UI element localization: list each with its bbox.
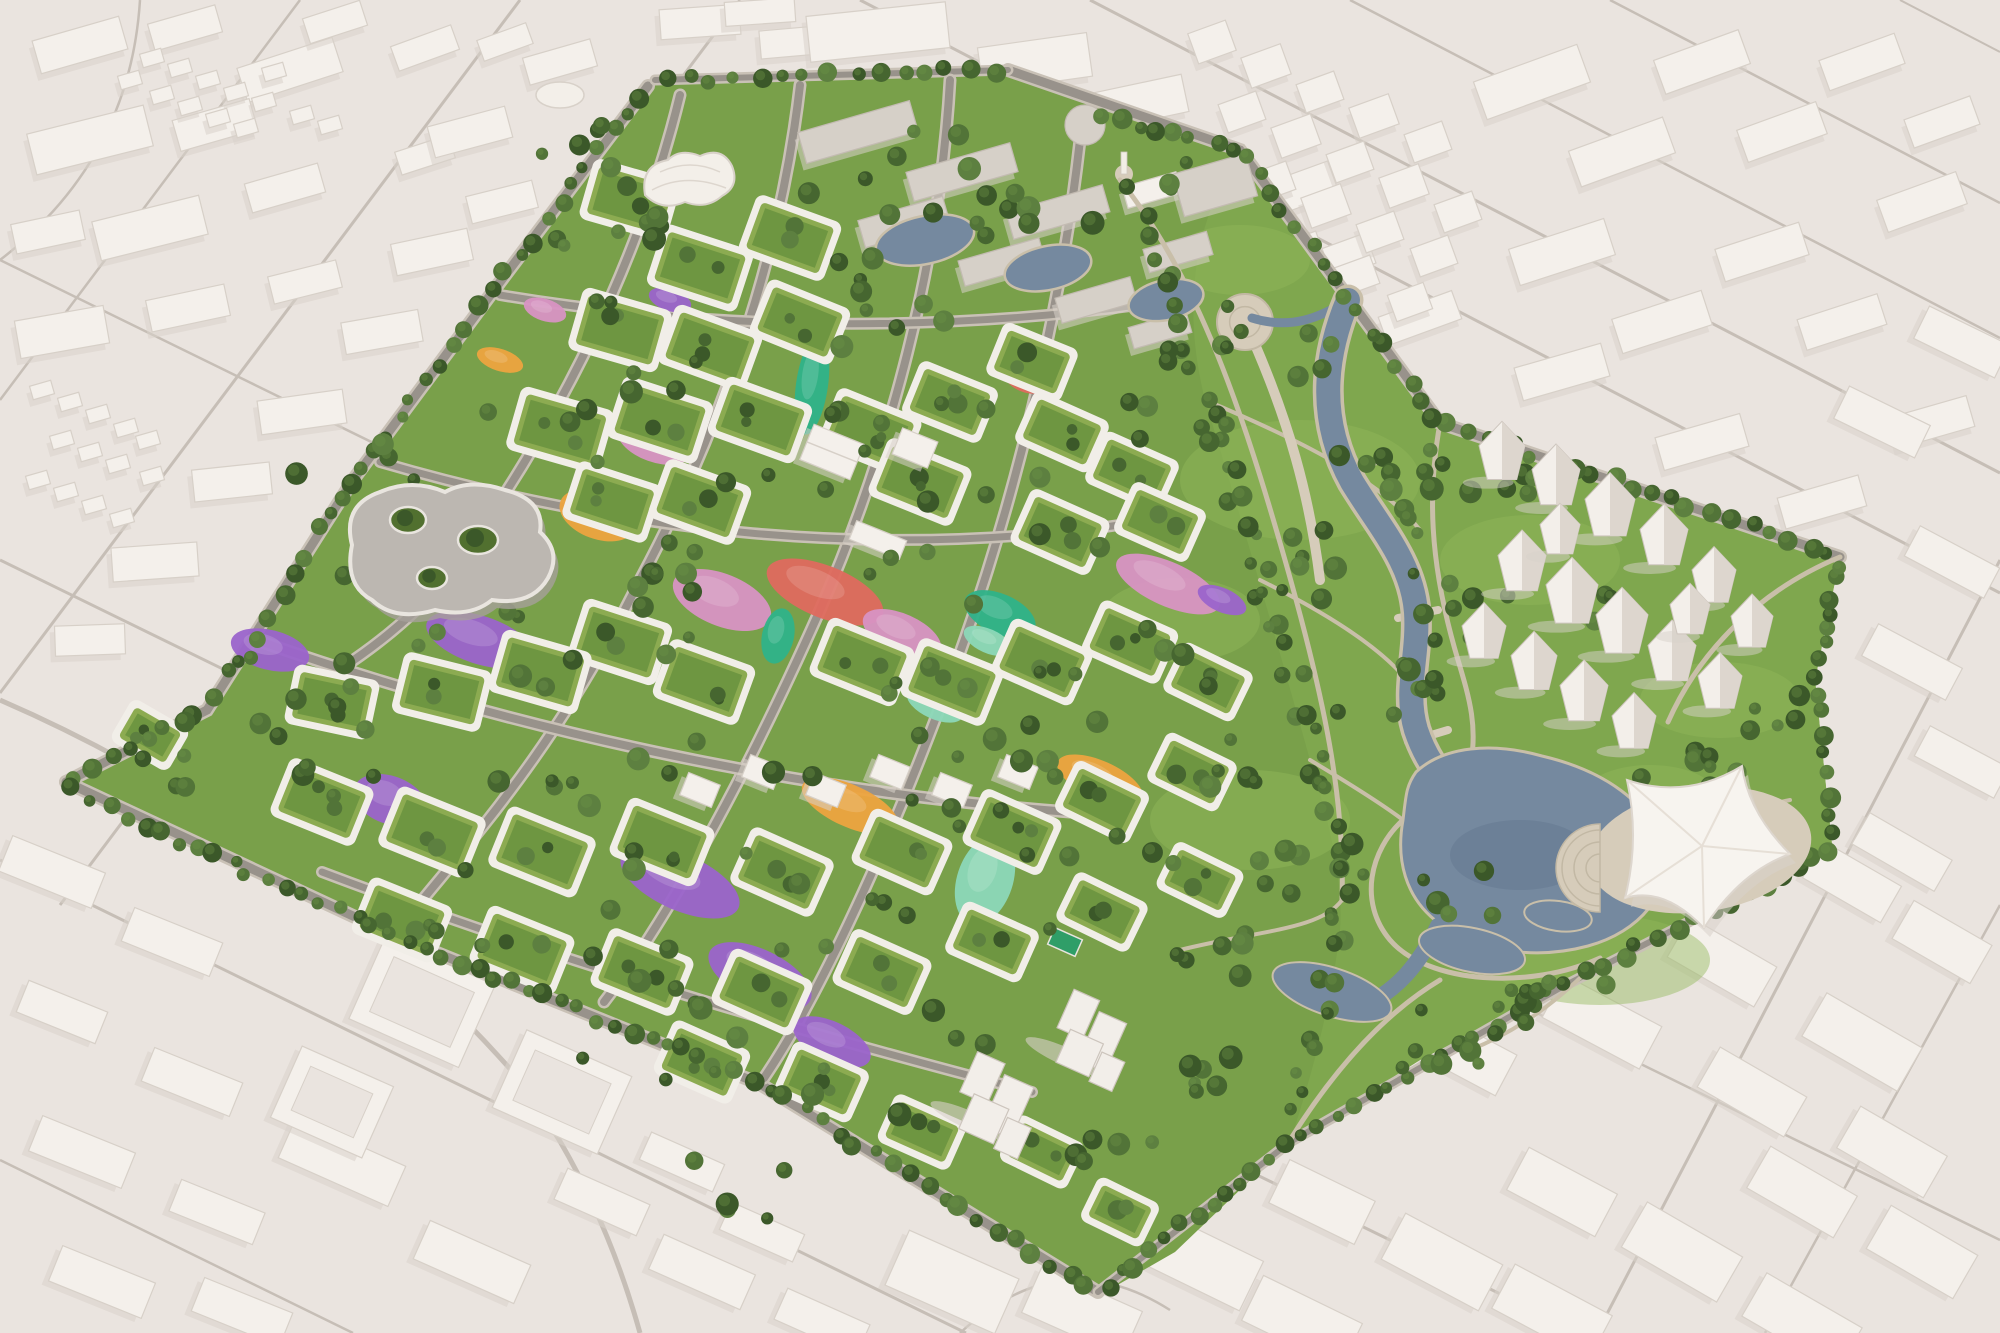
tree-highlight	[345, 680, 353, 688]
tree-highlight	[409, 475, 415, 481]
tree-highlight	[1159, 1233, 1165, 1239]
tree-highlight	[1331, 447, 1342, 458]
tree-highlight	[1177, 345, 1184, 352]
tree-highlight	[1298, 1087, 1304, 1093]
tree-highlight	[891, 1105, 903, 1117]
tree-highlight	[1327, 559, 1339, 571]
tree-highlight	[1443, 577, 1452, 586]
tree-highlight	[951, 126, 962, 137]
tree-highlight	[1077, 1154, 1086, 1163]
tree-highlight	[137, 752, 145, 760]
tree-highlight	[1821, 844, 1831, 854]
tree-highlight	[1319, 782, 1326, 789]
tree-highlight	[1318, 751, 1324, 757]
tree-highlight	[1317, 523, 1326, 532]
tree-highlight	[123, 814, 130, 821]
tree-highlight	[251, 633, 259, 641]
tree-highlight	[1815, 704, 1823, 712]
tree-highlight	[1543, 976, 1551, 984]
tree-highlight	[518, 250, 524, 256]
tree-highlight	[1039, 752, 1050, 763]
tree-highlight	[1292, 1068, 1298, 1074]
tree-highlight	[1290, 368, 1301, 379]
tree-highlight	[448, 339, 456, 347]
tree-highlight	[363, 918, 371, 926]
tree-highlight	[1433, 1055, 1444, 1066]
tree-highlight	[544, 213, 551, 220]
tree-highlight	[1148, 124, 1157, 133]
tree-highlight	[550, 232, 559, 241]
tree-highlight	[631, 971, 643, 983]
tree-highlight	[238, 869, 245, 876]
tree-highlight	[904, 1166, 913, 1175]
tree-highlight	[288, 691, 299, 702]
tree-highlight	[628, 367, 636, 375]
tree-highlight	[1257, 588, 1263, 594]
tree-highlight	[261, 611, 270, 620]
tree-highlight	[1333, 820, 1341, 828]
tree-highlight	[1183, 132, 1189, 138]
tree-highlight	[1327, 913, 1334, 920]
tree-highlight	[579, 401, 590, 412]
tree-highlight	[1447, 601, 1455, 609]
tree-highlight	[1332, 706, 1340, 714]
cloud-pavilion	[536, 82, 584, 108]
tree-highlight	[936, 398, 943, 405]
tree-highlight	[1219, 1187, 1227, 1195]
tree-highlight	[1084, 213, 1096, 225]
tree-highlight	[1235, 1179, 1242, 1186]
tree-highlight	[1032, 469, 1043, 480]
courtyard-tree	[466, 529, 484, 547]
tree-highlight	[1170, 315, 1180, 325]
tree-highlight	[953, 752, 959, 758]
tree-highlight	[1791, 687, 1802, 698]
tree-highlight	[1289, 222, 1296, 229]
tree-highlight	[232, 857, 238, 863]
tree-highlight	[818, 1113, 825, 1120]
tree-highlight	[591, 141, 599, 149]
tree-highlight	[1201, 678, 1210, 687]
tree-highlight	[473, 961, 483, 971]
context-building	[106, 542, 200, 588]
tree-highlight	[1369, 330, 1376, 337]
tree-highlight	[1652, 931, 1661, 940]
tree-highlight	[819, 1064, 825, 1070]
tree-highlight	[1070, 668, 1077, 675]
tree-highlight	[1276, 669, 1284, 677]
tree-highlight	[923, 1179, 932, 1188]
blob-building	[350, 484, 559, 622]
tree-highlight	[1397, 1062, 1404, 1069]
tree-highlight	[1773, 721, 1779, 727]
tree-highlight	[1506, 985, 1513, 992]
tree-highlight	[512, 667, 524, 679]
tree-highlight	[747, 1074, 757, 1084]
tree-highlight	[702, 76, 709, 83]
tree-highlight	[572, 137, 582, 147]
tree-highlight	[1137, 123, 1143, 129]
tree-highlight	[918, 66, 926, 74]
tree-highlight	[763, 469, 770, 476]
tree-highlight	[977, 1036, 987, 1046]
tree-highlight	[960, 680, 970, 690]
tree-highlight	[921, 545, 929, 553]
tree-highlight	[1812, 689, 1820, 697]
tree-highlight	[632, 91, 642, 101]
tree-highlight	[1325, 338, 1333, 346]
tree-highlight	[459, 864, 467, 872]
tree-highlight	[482, 405, 491, 414]
tree-highlight	[1606, 591, 1613, 598]
tree-highlight	[907, 795, 914, 802]
tree-highlight	[1743, 722, 1753, 732]
tree-highlight	[741, 848, 747, 854]
tree-highlight	[288, 566, 297, 575]
tree-highlight	[141, 820, 151, 830]
tree-highlight	[1427, 672, 1436, 681]
tree-highlight	[1344, 835, 1355, 846]
tree-highlight	[457, 323, 466, 332]
tree-highlight	[1705, 762, 1711, 768]
tree-highlight	[1348, 1099, 1356, 1107]
tree-highlight	[1121, 180, 1129, 188]
tree-highlight	[775, 1087, 785, 1097]
tree-highlight	[223, 664, 230, 671]
tree-highlight	[571, 1000, 578, 1007]
building-top	[54, 624, 125, 656]
tree-highlight	[989, 66, 999, 76]
tree-highlight	[1342, 885, 1352, 895]
tree-highlight	[525, 986, 531, 992]
tree-highlight	[435, 951, 443, 959]
tree-highlight	[627, 844, 636, 853]
tree-highlight	[1273, 205, 1281, 213]
tree-highlight	[337, 492, 345, 500]
tree-highlight	[1021, 215, 1032, 226]
tree-highlight	[954, 821, 961, 828]
tree-highlight	[1489, 1027, 1497, 1035]
tree-highlight	[1221, 494, 1230, 503]
tree-highlight	[1299, 707, 1309, 717]
tree-highlight	[85, 796, 91, 802]
tree-highlight	[591, 1017, 598, 1024]
tree-highlight	[471, 297, 481, 307]
tree-highlight	[1724, 511, 1734, 521]
tree-highlight	[375, 435, 386, 446]
tree-highlight	[288, 465, 299, 476]
tree-highlight	[820, 940, 828, 948]
tree-highlight	[1313, 972, 1322, 981]
tree-highlight	[1190, 1078, 1196, 1084]
tree-highlight	[692, 999, 704, 1011]
tree-highlight	[356, 463, 363, 470]
tree-highlight	[603, 902, 613, 912]
tree-highlight	[1230, 462, 1239, 471]
tree-highlight	[1702, 749, 1711, 758]
tree-highlight	[1145, 844, 1155, 854]
tree-highlight	[1023, 717, 1033, 727]
tree-highlight	[1476, 863, 1486, 873]
tree-highlight	[487, 973, 495, 981]
tree-highlight	[1425, 444, 1432, 451]
tree-highlight	[1303, 1032, 1312, 1041]
tree-highlight	[778, 1164, 786, 1172]
tree-highlight	[1172, 949, 1179, 956]
tree-highlight	[358, 722, 367, 731]
tree-highlight	[1388, 708, 1396, 716]
tree-highlight	[296, 888, 303, 895]
tree-highlight	[964, 61, 973, 70]
tree-highlight	[1140, 622, 1149, 631]
tree-highlight	[1376, 449, 1386, 459]
tree-highlight	[1222, 342, 1229, 349]
tree-highlight	[1213, 137, 1221, 145]
tree-highlight	[1174, 645, 1186, 657]
tree-highlight	[992, 1225, 1001, 1234]
tree-highlight	[669, 382, 679, 392]
tree-highlight	[1092, 539, 1102, 549]
tree-highlight	[691, 1049, 699, 1057]
tree-highlight	[1296, 1130, 1302, 1136]
tree-highlight	[1825, 609, 1832, 616]
tree-highlight	[1419, 875, 1425, 881]
tree-highlight	[1423, 1056, 1432, 1065]
tree-highlight	[1397, 501, 1407, 511]
tree-highlight	[1807, 541, 1817, 551]
tree-highlight	[1133, 432, 1142, 441]
tree-highlight	[1410, 1045, 1418, 1053]
tree-highlight	[891, 321, 899, 329]
tree-highlight	[1417, 1005, 1423, 1011]
tree-highlight	[1521, 985, 1529, 993]
tree-highlight	[1110, 1135, 1121, 1146]
tree-highlight	[1022, 1246, 1032, 1256]
tree-highlight	[1257, 168, 1263, 174]
tree-highlight	[490, 772, 501, 783]
tree-highlight	[1474, 1059, 1480, 1065]
tree-highlight	[336, 654, 347, 665]
tree-highlight	[1241, 150, 1249, 158]
tree-highlight	[1764, 527, 1771, 534]
tree-highlight	[864, 250, 875, 261]
tree-highlight	[526, 236, 536, 246]
tree-highlight	[610, 1021, 617, 1028]
tree-highlight	[797, 70, 803, 76]
tree-highlight	[1334, 1112, 1340, 1118]
tree-highlight	[635, 598, 646, 609]
tree-highlight	[901, 67, 908, 74]
tree-highlight	[1368, 1086, 1377, 1095]
tree-highlight	[85, 761, 95, 771]
tree-highlight	[1265, 1155, 1271, 1161]
tree-highlight	[1142, 1243, 1150, 1251]
tree-highlight	[177, 714, 187, 724]
tree-highlight	[1066, 1268, 1075, 1277]
tree-highlight	[1813, 652, 1821, 660]
tree-highlight	[659, 646, 669, 656]
tree-highlight	[330, 699, 339, 708]
tree-highlight	[1705, 505, 1715, 515]
tree-highlight	[1494, 1002, 1500, 1008]
tree-highlight	[1246, 559, 1252, 565]
tree-highlight	[431, 625, 439, 633]
tree-highlight	[535, 985, 545, 995]
tree-highlight	[125, 743, 132, 750]
tree-highlight	[336, 902, 343, 909]
tree-highlight	[1264, 622, 1270, 628]
tree-highlight	[1314, 590, 1325, 601]
tree-highlight	[765, 763, 777, 775]
tree-highlight	[791, 875, 802, 886]
tree-highlight	[689, 545, 697, 553]
tree-highlight	[301, 760, 310, 769]
tree-highlight	[547, 776, 554, 783]
tree-highlight	[1264, 186, 1273, 195]
tree-highlight	[687, 1153, 696, 1162]
tree-highlight	[833, 337, 845, 349]
tree-highlight	[1383, 465, 1393, 475]
tree-highlight	[1149, 254, 1157, 262]
tree-highlight	[175, 839, 182, 846]
tree-highlight	[1646, 486, 1654, 494]
tree-highlight	[1115, 111, 1125, 121]
tree-highlight	[651, 568, 658, 575]
tree-highlight	[1402, 511, 1410, 519]
obelisk	[1121, 152, 1127, 174]
tree-highlight	[1628, 939, 1635, 946]
tree-highlight	[1823, 789, 1833, 799]
tree-highlight	[1417, 682, 1426, 691]
tree-highlight	[264, 875, 270, 881]
tree-highlight	[729, 1029, 740, 1040]
tree-highlight	[435, 361, 442, 368]
tree-highlight	[1750, 704, 1756, 710]
tree-highlight	[1183, 362, 1190, 369]
tree-highlight	[1821, 622, 1829, 630]
tree-highlight	[1162, 176, 1172, 186]
tree-highlight	[1031, 525, 1042, 536]
tree-highlight	[344, 476, 354, 486]
tree-highlight	[645, 229, 657, 241]
tree-highlight	[430, 924, 438, 932]
tree-highlight	[1226, 734, 1232, 740]
tree-highlight	[1788, 712, 1798, 722]
tree-highlight	[686, 70, 693, 77]
tree-highlight	[578, 1053, 585, 1060]
tree-highlight	[478, 940, 485, 947]
tree-highlight	[718, 474, 728, 484]
tree-highlight	[719, 1195, 731, 1207]
tree-highlight	[234, 656, 240, 662]
tree-highlight	[1416, 606, 1426, 616]
rendering-stage	[0, 0, 2000, 1333]
tree-highlight	[421, 374, 428, 381]
tree-highlight	[820, 65, 830, 75]
tree-highlight	[568, 777, 575, 784]
tree-highlight	[399, 413, 405, 419]
tree-highlight	[1821, 766, 1828, 773]
tree-highlight	[1085, 1132, 1095, 1142]
tree-highlight	[690, 734, 699, 743]
tree-highlight	[252, 715, 263, 726]
tree-highlight	[278, 587, 288, 597]
tree-highlight	[1309, 239, 1316, 246]
tree-highlight	[853, 283, 864, 294]
tree-highlight	[1215, 938, 1225, 948]
tree-highlight	[861, 305, 868, 312]
tree-highlight	[1278, 1136, 1287, 1145]
tree-highlight	[1111, 829, 1120, 838]
tree-highlight	[727, 1063, 736, 1072]
tree-highlight	[887, 1156, 896, 1165]
tree-highlight	[1139, 398, 1150, 409]
tree-highlight	[143, 733, 151, 741]
tree-highlight	[179, 750, 186, 757]
tree-highlight	[1249, 591, 1257, 599]
tree-highlight	[1430, 634, 1438, 642]
tree-highlight	[630, 750, 642, 762]
residential-block	[397, 657, 487, 727]
tree-highlight	[728, 73, 734, 79]
tree-highlight	[1240, 768, 1251, 779]
tree-highlight	[950, 1032, 958, 1040]
tree-highlight	[1076, 1277, 1086, 1287]
context-building	[719, 0, 796, 33]
tree-highlight	[1531, 984, 1540, 993]
tree-highlight	[874, 65, 884, 75]
tree-highlight	[1389, 361, 1396, 368]
tree-highlight	[1312, 724, 1318, 730]
tree-highlight	[1454, 1037, 1463, 1046]
tree-highlight	[1687, 751, 1698, 762]
tree-highlight	[1335, 862, 1343, 870]
tree-highlight	[1462, 1042, 1473, 1053]
tree-highlight	[1209, 1199, 1216, 1206]
tree-highlight	[281, 881, 289, 889]
tree-highlight	[1161, 354, 1170, 363]
tree-highlight	[1232, 967, 1243, 978]
tree-highlight	[1749, 517, 1757, 525]
tree-highlight	[971, 217, 979, 225]
tree-highlight	[1292, 558, 1302, 568]
tree-highlight	[937, 62, 945, 70]
tree-highlight	[855, 274, 862, 281]
tree-highlight	[961, 159, 973, 171]
tree-highlight	[944, 800, 954, 810]
tree-highlight	[623, 382, 635, 394]
tree-highlight	[178, 779, 188, 789]
tree-highlight	[966, 597, 976, 607]
tree-highlight	[1298, 667, 1307, 676]
tree-highlight	[1278, 585, 1284, 591]
tree-highlight	[1330, 273, 1337, 280]
tree-highlight	[192, 841, 200, 849]
tree-highlight	[1423, 479, 1435, 491]
tree-highlight	[995, 804, 1003, 812]
tree-highlight	[1634, 770, 1643, 779]
tree-highlight	[592, 456, 599, 463]
tree-highlight	[1442, 907, 1450, 915]
tree-highlight	[106, 799, 115, 808]
tree-highlight	[557, 995, 564, 1002]
tree-highlight	[630, 578, 640, 588]
tree-highlight	[1359, 870, 1365, 876]
tree-highlight	[1429, 893, 1441, 905]
tree-highlight	[613, 226, 620, 233]
masterplan-rendering	[0, 0, 2000, 1333]
tree-highlight	[1157, 641, 1168, 652]
